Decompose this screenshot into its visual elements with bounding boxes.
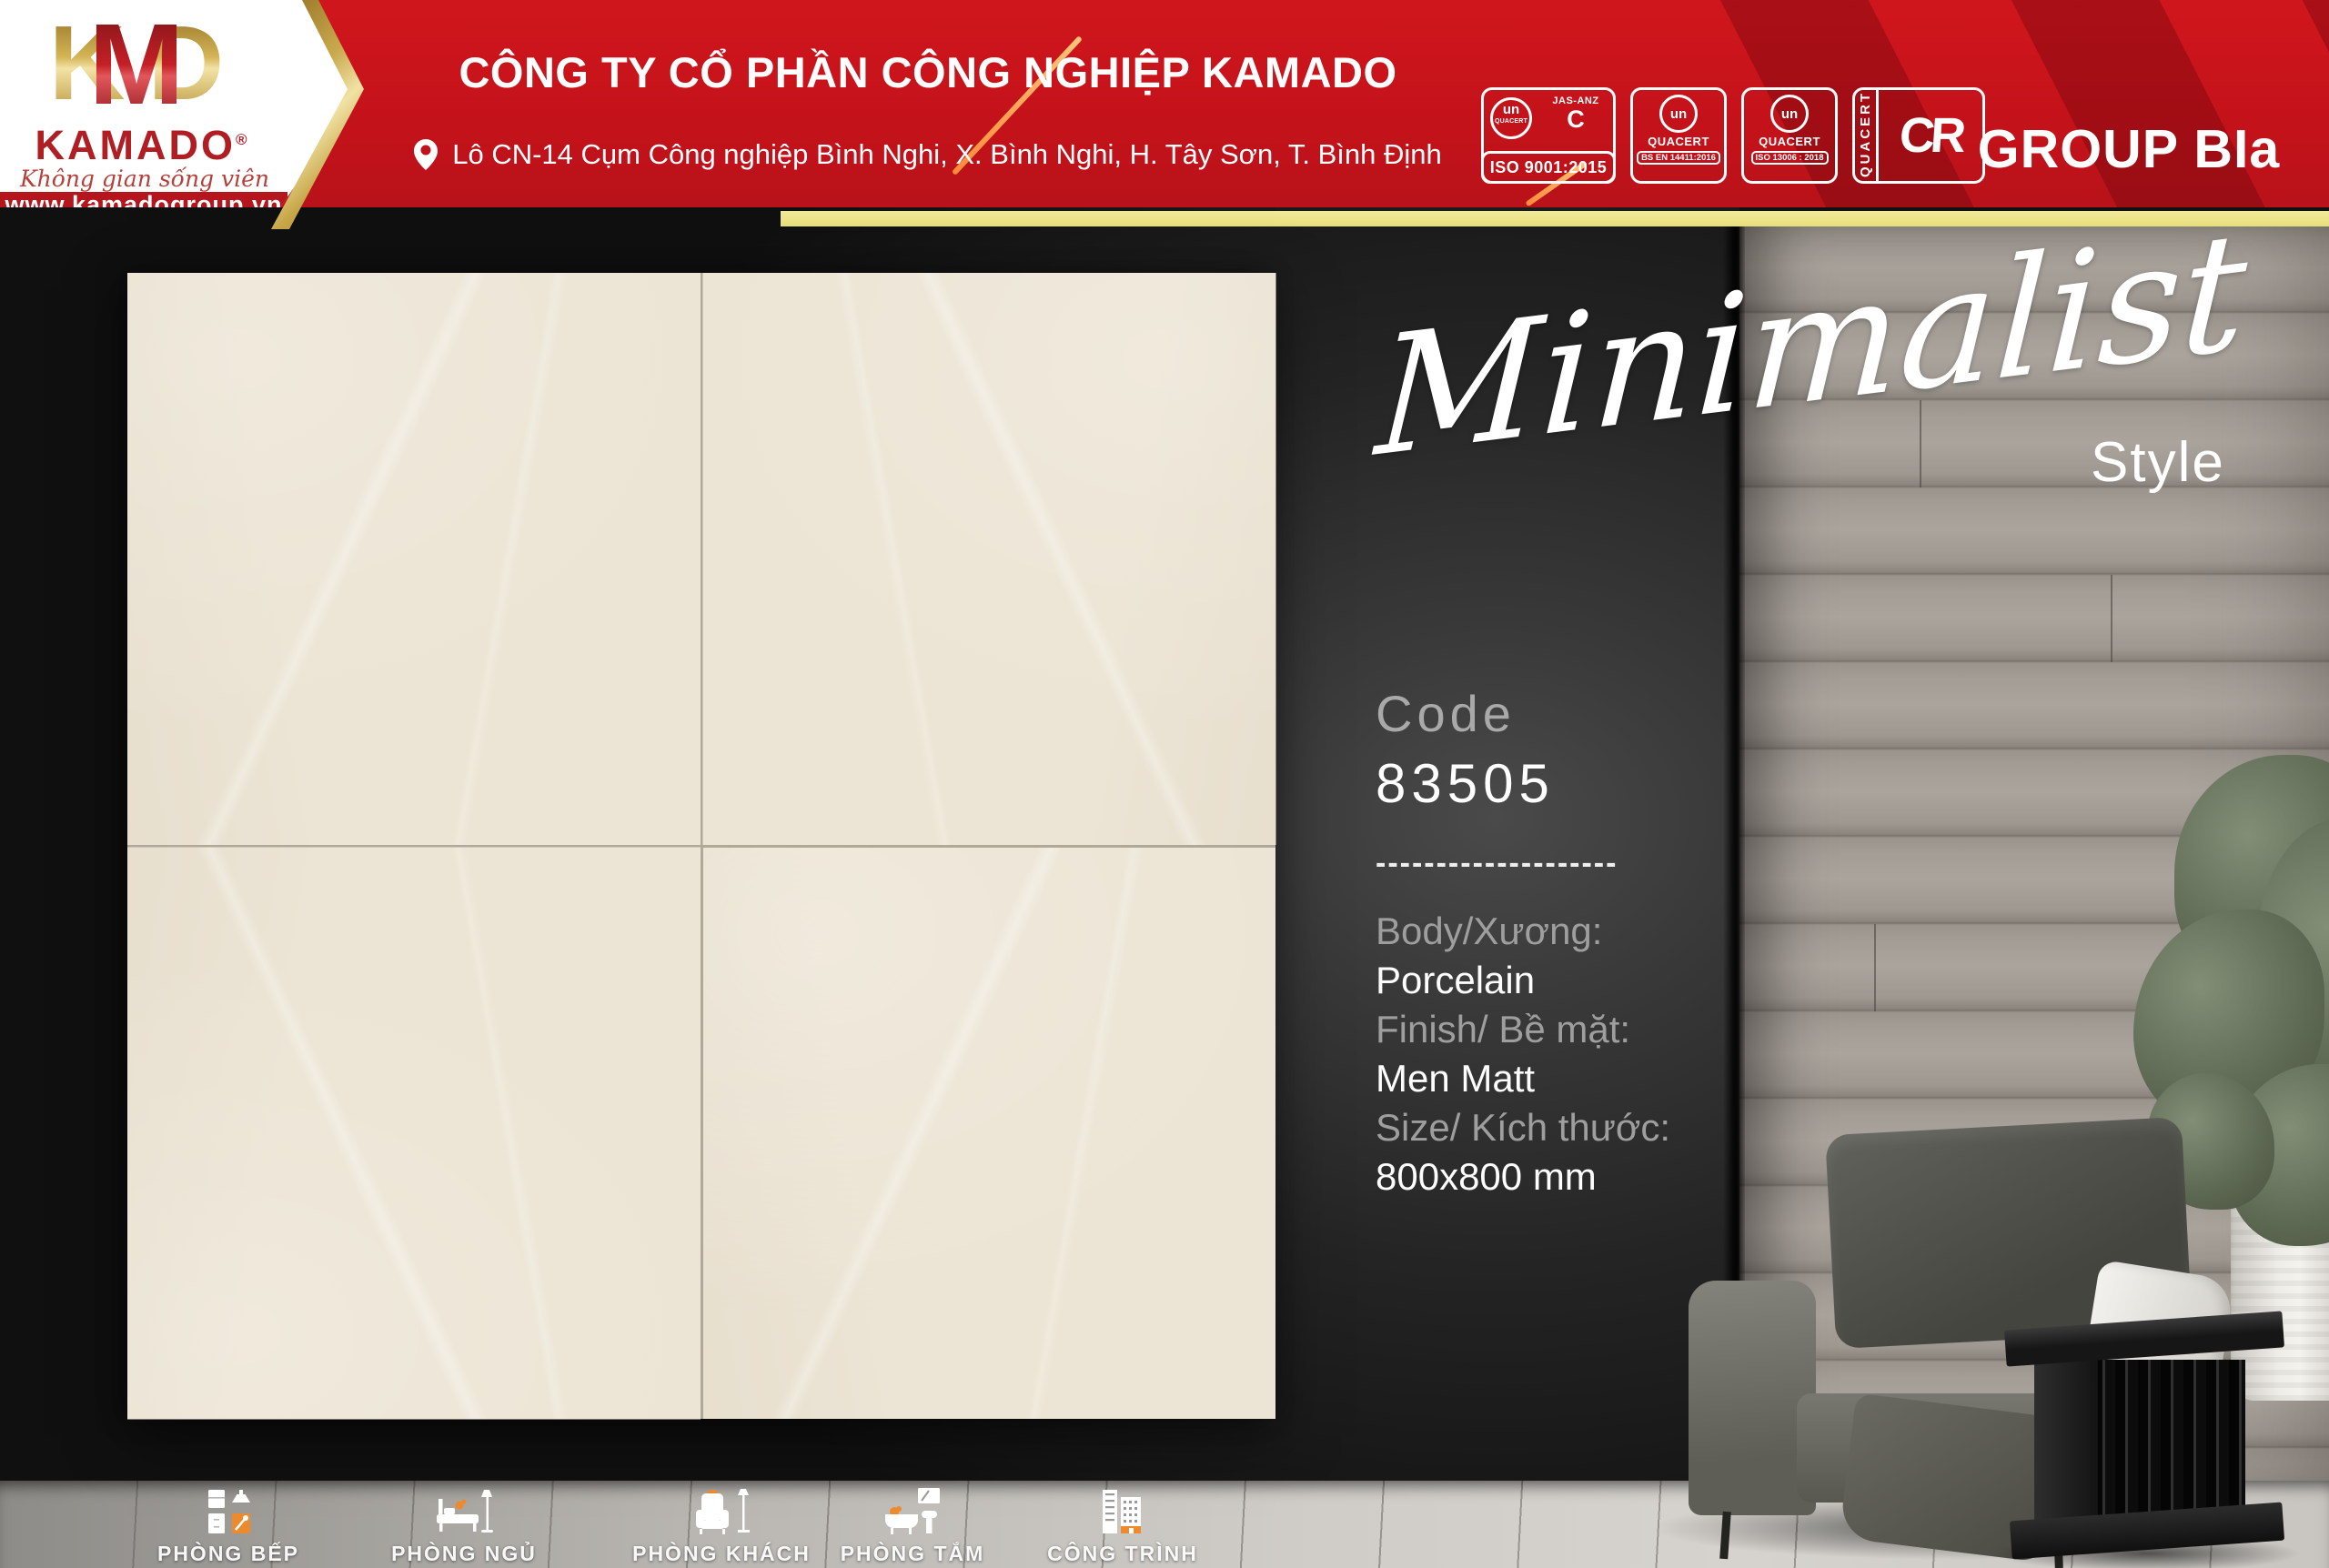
company-address-row: Lô CN-14 Cụm Công nghiệp Bình Nghi, X. B… — [391, 138, 1465, 171]
bathroom-icon — [803, 1486, 1022, 1537]
spec-list: Body/Xương: Porcelain Finish/ Bề mặt: Me… — [1376, 907, 1794, 1201]
location-pin-icon — [414, 139, 438, 170]
company-address: Lô CN-14 Cụm Công nghiệp Bình Nghi, X. B… — [452, 138, 1442, 171]
tile-swatch — [127, 848, 701, 1420]
nav-item-livingroom[interactable]: PHÒNG KHÁCH — [612, 1486, 831, 1566]
brand-name: KAMADO® — [0, 122, 282, 169]
tile-product-image — [127, 273, 1275, 1419]
nav-item-bathroom[interactable]: PHÒNG TẮM — [803, 1486, 1022, 1566]
badge-bs-en-14411: un QUACERT BS EN 14411:2016 — [1630, 87, 1727, 184]
nav-item-projects[interactable]: CÔNG TRÌNH — [1013, 1486, 1232, 1566]
nav-label: PHÒNG KHÁCH — [612, 1542, 831, 1566]
catalog-page: KMD KAMADO® Không gian sống viên mãn www… — [0, 0, 2329, 1568]
spec-value-body: Porcelain — [1376, 956, 1794, 1005]
monogram-letter-m: M — [89, 6, 185, 123]
nav-label: PHÒNG NGỦ — [355, 1542, 573, 1566]
spec-label-finish: Finish/ Bề mặt: — [1376, 1005, 1794, 1054]
badge-iso-13006: un QUACERT ISO 13006 : 2018 — [1741, 87, 1838, 184]
spec-value-finish: Men Matt — [1376, 1054, 1794, 1103]
company-name: CÔNG TY CỔ PHẦN CÔNG NGHIỆP KAMADO — [391, 47, 1465, 97]
badge-label: BS EN 14411:2016 — [1637, 151, 1720, 165]
product-code: 83505 — [1376, 752, 1794, 815]
certification-badges: un QUACERT JAS-ANZ C ISO 9001:2015 un QU… — [1481, 87, 1985, 189]
nav-label: CÔNG TRÌNH — [1013, 1542, 1232, 1566]
registered-mark: ® — [236, 131, 247, 148]
style-suffix-word: Style — [2091, 430, 2225, 495]
spec-label-size: Size/ Kích thước: — [1376, 1103, 1794, 1152]
tile-group-classification: GROUP BIa — [1938, 118, 2320, 180]
jas-anz-mark: JAS-ANZ C — [1544, 95, 1608, 132]
spec-value-size: 800x800 mm — [1376, 1152, 1794, 1201]
livingroom-icon — [612, 1486, 831, 1537]
quacert-mark-icon: un — [1770, 95, 1809, 133]
code-label: Code — [1376, 684, 1794, 743]
kitchen-icon — [119, 1486, 338, 1537]
building-icon — [1013, 1486, 1232, 1537]
badge-label: ISO 9001:2015 — [1481, 151, 1616, 184]
badge-label: ISO 13006 : 2018 — [1751, 151, 1829, 165]
nav-item-kitchen[interactable]: PHÒNG BẾP — [119, 1486, 338, 1566]
dashed-divider: -------------------- — [1376, 846, 1794, 881]
badge-iso-9001: un QUACERT JAS-ANZ C ISO 9001:2015 — [1481, 87, 1616, 184]
bedroom-icon — [355, 1486, 573, 1537]
tile-swatch — [703, 273, 1276, 845]
spec-label-body: Body/Xương: — [1376, 907, 1794, 956]
nav-label: PHÒNG TẮM — [803, 1542, 1022, 1566]
quacert-mark-icon: un QUACERT — [1490, 97, 1532, 139]
tile-swatch — [703, 848, 1276, 1420]
nav-label: PHÒNG BẾP — [119, 1542, 338, 1566]
style-headline: Minimalist Style — [1310, 250, 2329, 550]
product-info: Code 83505 -------------------- Body/Xươ… — [1376, 684, 1794, 1201]
quacert-mark-icon: un — [1659, 95, 1698, 133]
nav-item-bedroom[interactable]: PHÒNG NGỦ — [355, 1486, 573, 1566]
tile-swatch — [127, 273, 701, 845]
